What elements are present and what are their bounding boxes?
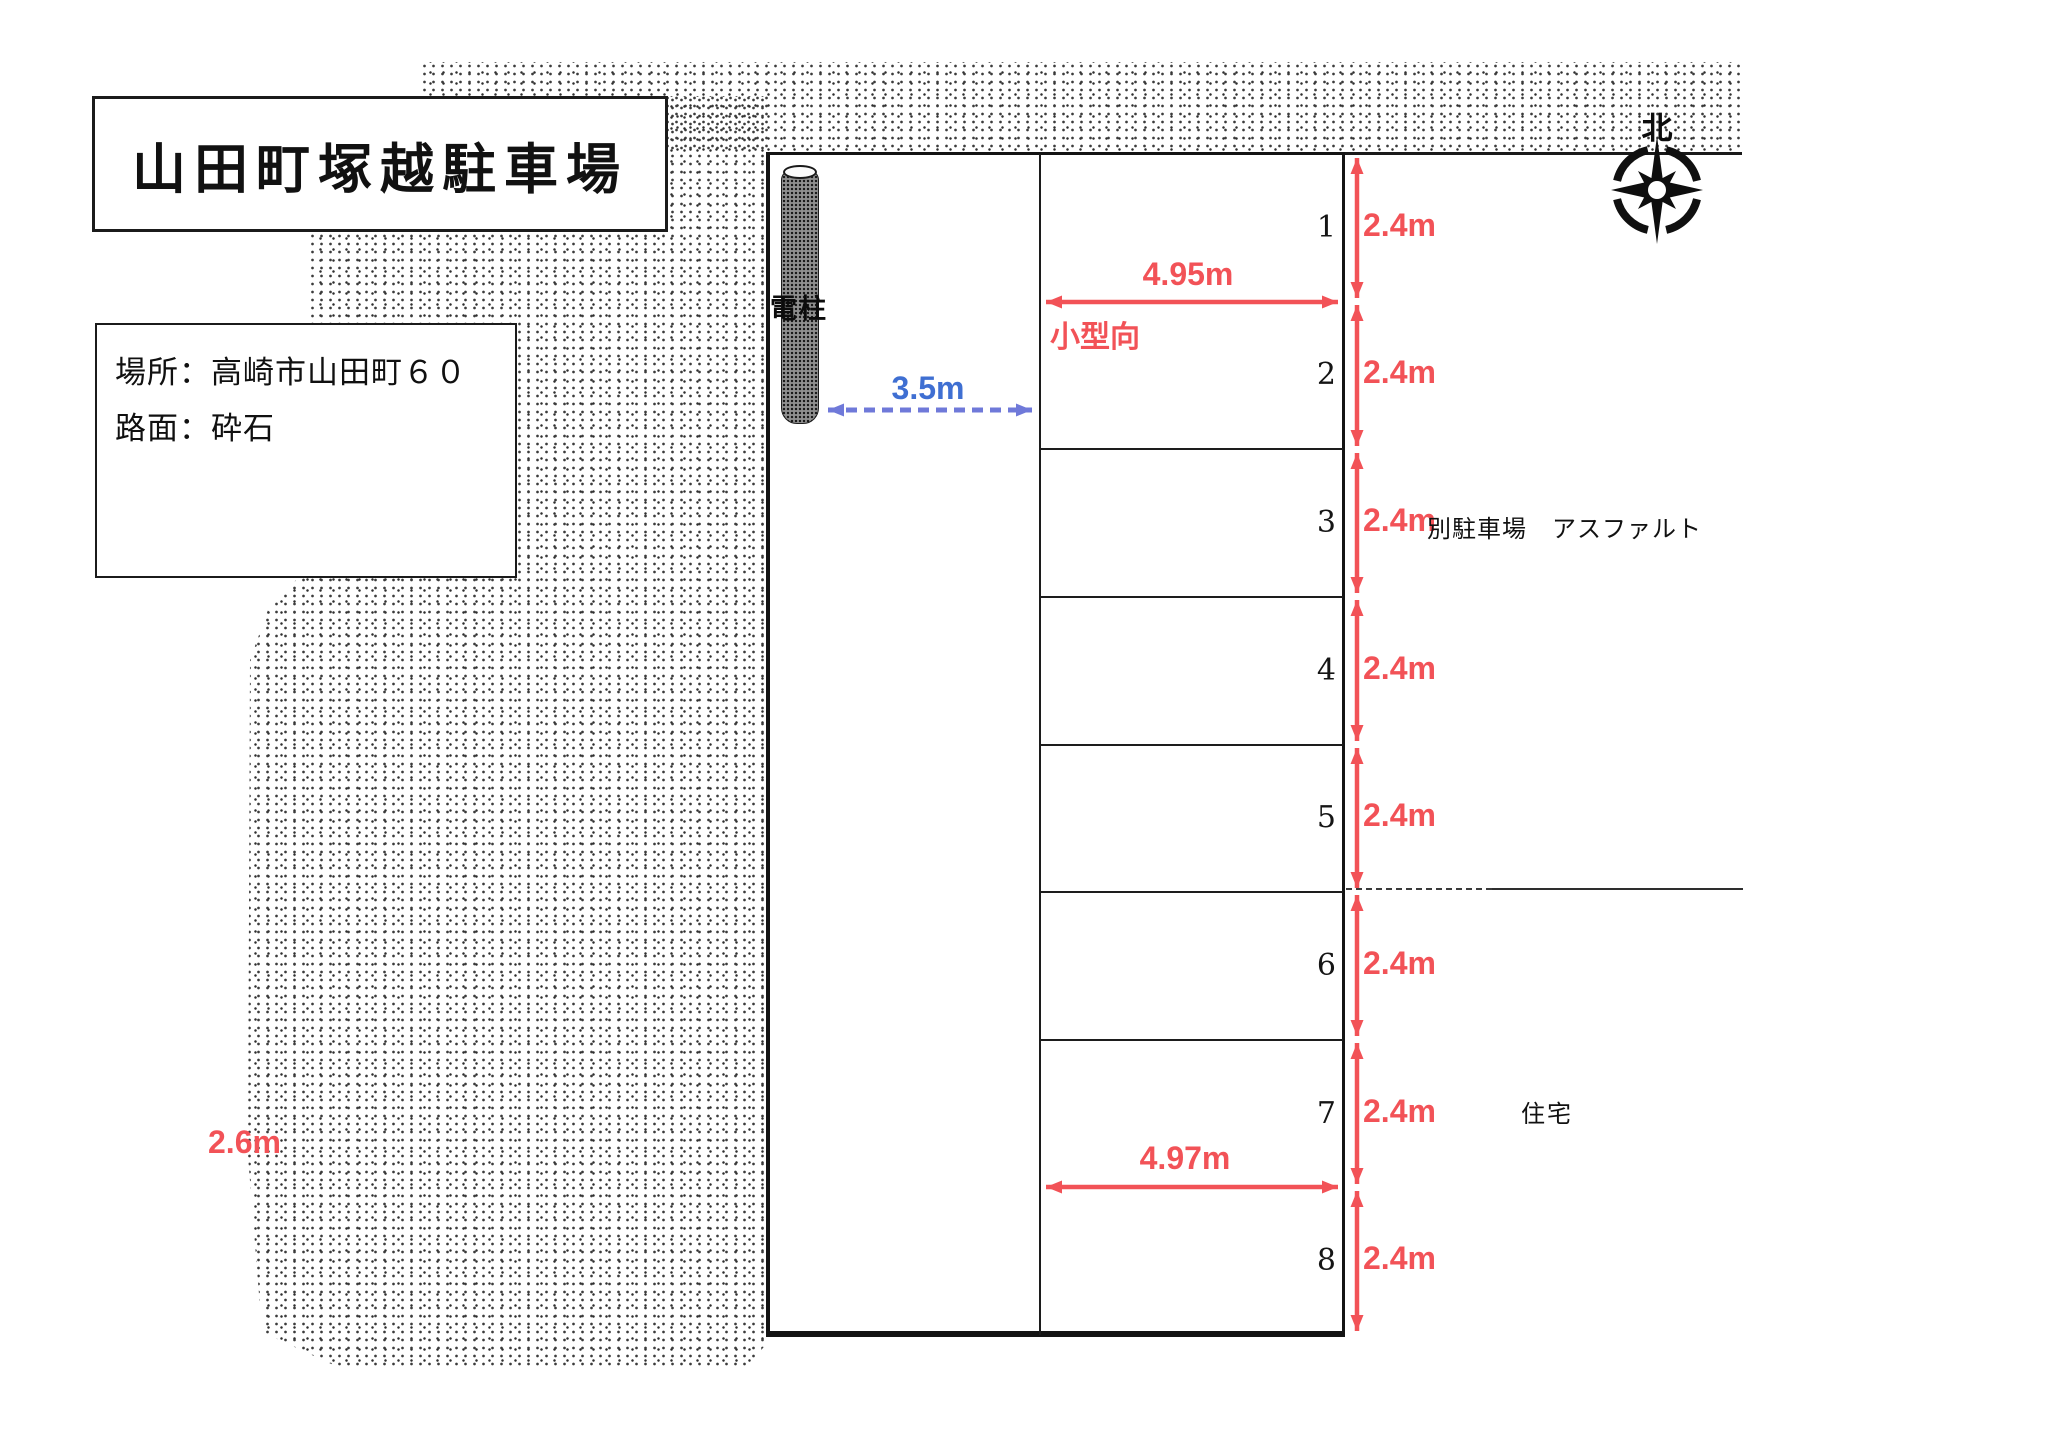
north-label: 北 bbox=[1627, 103, 1687, 148]
stall-number-7: 7 bbox=[1294, 1096, 1336, 1131]
stall-divider-line bbox=[1041, 448, 1343, 450]
adjacent-parking-label: 別駐車場 アスファルト bbox=[1427, 509, 1702, 544]
compass-diagonal-star bbox=[1638, 171, 1676, 209]
boundary-line-top-extension bbox=[1343, 152, 1742, 155]
stall-divider-line bbox=[1041, 891, 1343, 893]
road-surface-text: 路面：砕石 bbox=[115, 401, 515, 457]
small-car-note: 小型向 bbox=[1050, 312, 1140, 356]
stall-depth-label-4: 2.4m bbox=[1363, 650, 1436, 687]
compass-center-hole bbox=[1648, 181, 1666, 199]
parking-lot-diagram: 山田町塚越駐車場 場所：高崎市山田町６０ 路面：砕石 電柱 1 2 3 4 5 … bbox=[0, 0, 2048, 1447]
stall-divider-line bbox=[1041, 596, 1343, 598]
stall-number-8: 8 bbox=[1294, 1243, 1336, 1278]
location-text: 場所：高崎市山田町６０ bbox=[115, 345, 515, 401]
stall-divider-line bbox=[1041, 744, 1343, 746]
left-dimension-label: 2.6m bbox=[208, 1124, 281, 1161]
stall-number-2: 2 bbox=[1294, 357, 1336, 392]
title-box: 山田町塚越駐車場 bbox=[92, 96, 668, 232]
pole-distance-label: 3.5m bbox=[858, 370, 998, 407]
utility-pole-label: 電柱 bbox=[770, 287, 828, 326]
stall-number-4: 4 bbox=[1294, 653, 1336, 688]
utility-pole-cap bbox=[783, 165, 817, 179]
neighbor-boundary-line-dashed bbox=[1346, 888, 1492, 890]
stall-depth-label-2: 2.4m bbox=[1363, 354, 1436, 391]
stall-depth-label-8: 2.4m bbox=[1363, 1240, 1436, 1277]
stall-number-1: 1 bbox=[1294, 210, 1336, 245]
stall-number-6: 6 bbox=[1294, 948, 1336, 983]
stall-depth-label-6: 2.4m bbox=[1363, 945, 1436, 982]
stall-depth-label-7: 2.4m bbox=[1363, 1093, 1436, 1130]
stall-depth-label-3: 2.4m bbox=[1363, 502, 1436, 539]
residence-label: 住宅 bbox=[1521, 1094, 1573, 1129]
compass-ring bbox=[1617, 150, 1697, 230]
info-box: 場所：高崎市山田町６０ 路面：砕石 bbox=[95, 323, 517, 578]
gravel-texture-left-area bbox=[245, 96, 770, 1368]
stall-number-5: 5 bbox=[1294, 800, 1336, 835]
neighbor-boundary-line bbox=[1492, 888, 1743, 890]
page-title: 山田町塚越駐車場 bbox=[132, 125, 628, 204]
stall-depth-label-1: 2.4m bbox=[1363, 207, 1436, 244]
stall-number-3: 3 bbox=[1294, 505, 1336, 540]
stall-divider-line bbox=[1041, 1039, 1343, 1041]
stall-width-top-label: 4.95m bbox=[1108, 256, 1268, 293]
stall-width-bottom-label: 4.97m bbox=[1105, 1140, 1265, 1177]
stall-depth-label-5: 2.4m bbox=[1363, 797, 1436, 834]
